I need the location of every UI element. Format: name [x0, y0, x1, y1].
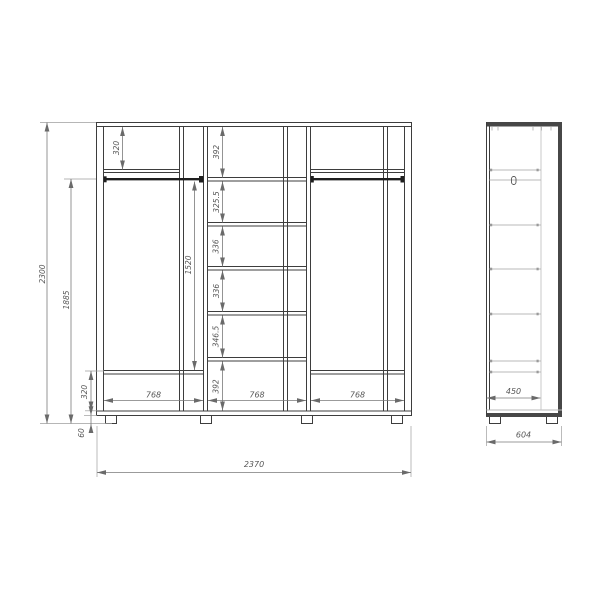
side-shelf-lines — [490, 169, 542, 374]
dim-left-bottom-label: 320 — [80, 385, 89, 400]
dim-section-width-left-label: 768 — [146, 391, 161, 400]
dimension-lines — [40, 123, 562, 478]
dim-mid-gap-0-label: 392 — [212, 145, 221, 160]
front-legs — [106, 416, 403, 424]
front-view — [97, 123, 412, 424]
dim-overall-height-label: 2300 — [38, 264, 47, 283]
front-shelves — [104, 170, 405, 375]
dim-mid-gap-3-label: 336 — [212, 284, 221, 299]
dim-section-width-mid-label: 768 — [249, 391, 264, 400]
dim-overall-width-label: 2370 — [244, 460, 264, 469]
side-legs — [490, 417, 558, 424]
dim-hanging-zone-label: 1885 — [62, 290, 71, 309]
dim-mid-gap-4-label: 346.5 — [212, 326, 221, 348]
hanging-rods — [104, 176, 404, 183]
dim-mid-gap-1-label: 325.5 — [212, 191, 221, 213]
side-fitting-ticks — [492, 127, 551, 131]
dim-section-width-right-label: 768 — [350, 391, 365, 400]
dim-mid-bottom-label: 392 — [212, 379, 221, 394]
wardrobe-dimension-drawing: 2300 1885 320 392 325.5 336 336 346.5 15… — [0, 0, 600, 600]
dim-inner-depth-label: 450 — [506, 387, 521, 396]
dim-overall-depth-label: 604 — [516, 431, 531, 440]
dim-mid-gap-2-label: 336 — [212, 239, 221, 254]
dim-left-top-shelf-label: 320 — [112, 141, 121, 156]
side-view — [486, 122, 562, 424]
drawing-canvas: 2300 1885 320 392 325.5 336 336 346.5 15… — [0, 0, 600, 600]
front-carcass-outline — [97, 123, 412, 416]
dim-rod-drop-label: 1520 — [184, 255, 193, 274]
dim-leg-height-label: 60 — [77, 428, 86, 438]
dimension-labels: 2300 1885 320 392 325.5 336 336 346.5 15… — [38, 141, 531, 469]
